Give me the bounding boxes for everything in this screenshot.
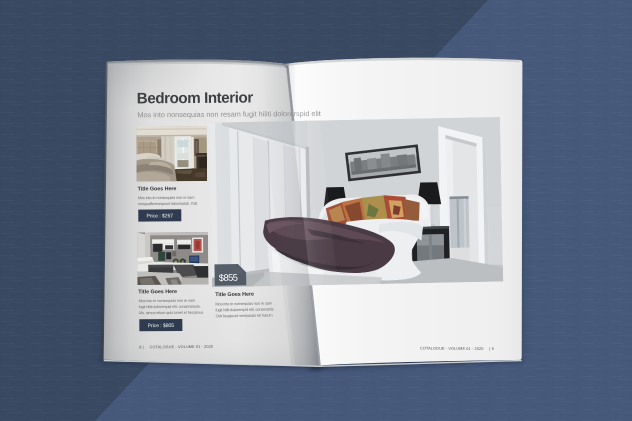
svg-text:fugit hiliti dolorerspid elit,: fugit hiliti dolorerspid elit, consectet…	[215, 306, 273, 312]
svg-text:Title Goes Here: Title Goes Here	[138, 186, 177, 192]
svg-text:$855: $855	[219, 272, 238, 283]
svg-text:Mos into te nonsequias non re: Mos into te nonsequias non re sam	[215, 301, 272, 307]
svg-text:Price : $267: Price : $267	[147, 213, 174, 219]
svg-text:fugit hiliti dolorerspid elit,: fugit hiliti dolorerspid elit, consectet…	[139, 304, 201, 309]
svg-text:Title Goes Here: Title Goes Here	[138, 289, 177, 295]
svg-text:Ovit beaquunt veniparato tet h: Ovit beaquunt veniparato tet harum	[216, 313, 273, 319]
svg-text:Uls, simos etium quis iumet et: Uls, simos etium quis iumet et beccimus	[139, 310, 204, 316]
svg-text:Mos into te nonsequias non re: Mos into te nonsequias non re sam	[138, 195, 195, 200]
svg-text:Mos into te nonsequias non re: Mos into te nonsequias non re sam	[139, 298, 196, 303]
svg-text:Title Goes Here: Title Goes Here	[215, 292, 254, 299]
svg-text:Bedroom Interior: Bedroom Interior	[137, 89, 254, 107]
svg-text:Price : $805: Price : $805	[148, 323, 175, 329]
svg-text:COTALOGUE - VOLUME 01 - 2020: COTALOGUE - VOLUME 01 - 2020 | 9	[420, 347, 494, 352]
svg-text:nonquafferesequunt laborinplab: nonquafferesequunt laborinplab. Ovit	[138, 201, 198, 206]
svg-text:8 | COTALOGUE - VOLUME 01: 8 | COTALOGUE - VOLUME 01 - 2020	[139, 345, 213, 350]
